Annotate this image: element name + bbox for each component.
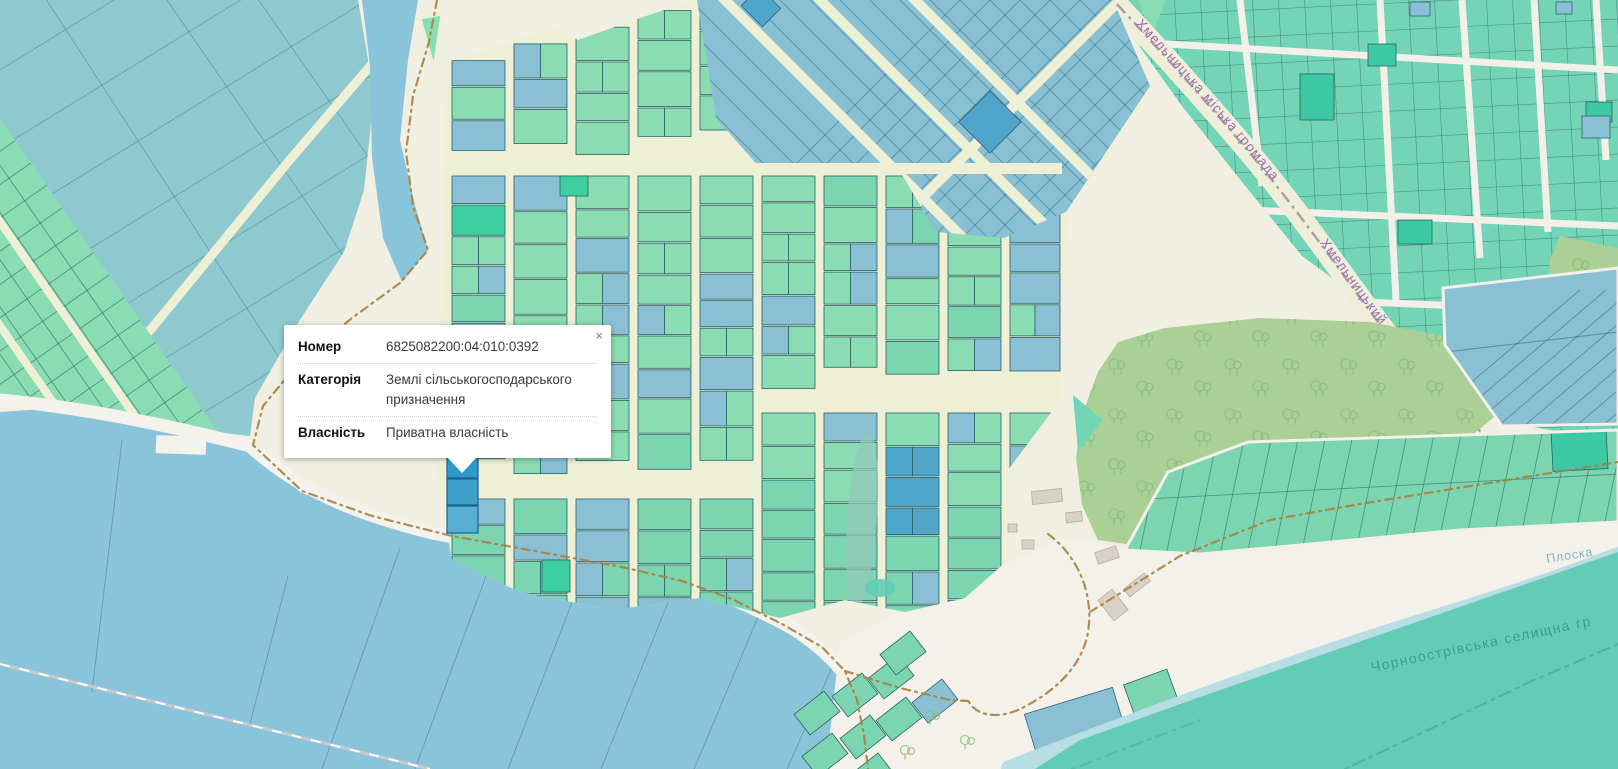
popup-label-number: Номер	[298, 337, 386, 356]
popup-value-category: Землі сільськогосподарського призначення	[386, 370, 597, 409]
popup-row-category: Категорія Землі сільськогосподарського п…	[298, 364, 597, 417]
popup-value-ownership: Приватна власність	[386, 423, 597, 442]
cadastral-map-canvas[interactable]: Хмельницька міська громада Хмельницький …	[0, 0, 1618, 769]
cadastral-map-app: Хмельницька міська громада Хмельницький …	[0, 0, 1618, 769]
popup-row-ownership: Власність Приватна власність	[298, 417, 597, 449]
popup-value-number: 6825082200:04:010:0392	[386, 337, 597, 356]
map-geometry	[0, 0, 1618, 769]
popup-row-number: Номер 6825082200:04:010:0392	[298, 331, 597, 364]
popup-label-ownership: Власність	[298, 423, 386, 442]
parcel-info-popup: × Номер 6825082200:04:010:0392 Категорія…	[284, 325, 611, 458]
popup-label-category: Категорія	[298, 370, 386, 409]
popup-close-button[interactable]: ×	[592, 326, 606, 345]
